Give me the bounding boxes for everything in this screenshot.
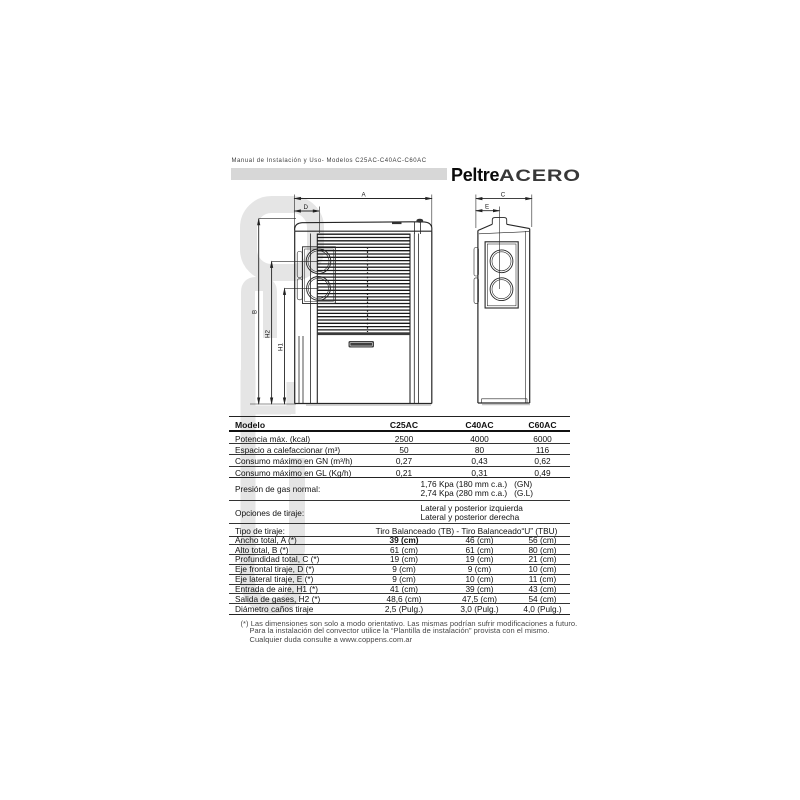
svg-text:B: B bbox=[252, 310, 259, 314]
svg-text:C: C bbox=[501, 192, 506, 199]
svg-text:H1: H1 bbox=[278, 343, 285, 351]
svg-text:A: A bbox=[362, 192, 367, 199]
svg-text:D: D bbox=[304, 204, 309, 211]
svg-text:H2: H2 bbox=[265, 330, 272, 338]
svg-text:E: E bbox=[485, 204, 489, 211]
